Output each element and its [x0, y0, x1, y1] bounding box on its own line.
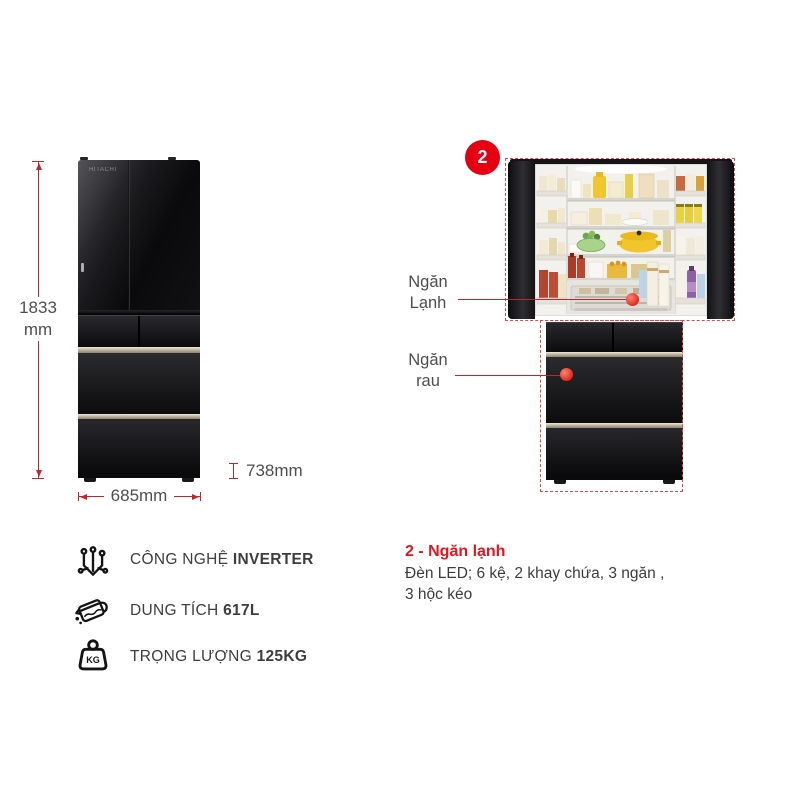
door-hinge [80, 157, 88, 160]
door-split-line [128, 160, 130, 310]
callout-line-ngan-rau [455, 375, 567, 376]
weight-icon-kg-text: KG [86, 655, 100, 665]
circuit-icon [70, 538, 116, 582]
callout-dot-ngan-lanh [626, 293, 639, 306]
feature-weight: KG TRỌNG LƯỢNG 125KG [70, 635, 307, 679]
large-drawer [78, 353, 200, 414]
feature-weight-text: TRỌNG LƯỢNG 125KG [130, 648, 307, 666]
fridge-doors: HITACHI [78, 160, 200, 310]
label-ngan-lanh: Ngăn Lạnh [398, 272, 458, 314]
callout-badge: 2 [465, 140, 500, 175]
height-value: 1833 [10, 297, 66, 319]
label-ngan-rau: Ngăn rau [398, 350, 458, 392]
feature-inverter: CÔNG NGHỆ INVERTER [70, 538, 314, 582]
description-line: Đèn LED; 6 kệ, 2 khay chứa, 3 ngăn , [405, 563, 725, 584]
brand-logo: HITACHI [89, 167, 117, 173]
door-hinge [168, 157, 176, 160]
door-gloss [78, 160, 200, 310]
small-drawers [78, 315, 200, 347]
depth-dimension-cap-top [229, 463, 238, 464]
width-arrow-right [192, 494, 199, 500]
feature-capacity: DUNG TÍCH 617L [70, 589, 260, 633]
door-handle [81, 263, 84, 272]
height-dimension-cap-top [32, 161, 44, 162]
height-arrow-down [36, 470, 42, 477]
drawer-split-line [138, 316, 140, 347]
product-infographic: HITACHI 1833 mm 685mm 738mm 2 [0, 0, 800, 800]
callout-dot-ngan-rau [560, 368, 573, 381]
fridge-base [78, 473, 200, 478]
height-arrow-up [36, 163, 42, 170]
fridge-foot [182, 478, 194, 482]
dashed-outline-fridge-compartment [505, 158, 735, 321]
capacity-jug-icon [70, 589, 116, 633]
large-drawer [78, 419, 200, 473]
height-unit: mm [10, 319, 66, 341]
height-dimension-label: 1833 mm [10, 297, 66, 341]
width-dimension-cap-right [200, 492, 201, 501]
height-dimension-cap-bottom [32, 478, 44, 479]
width-dimension-cap-left [78, 492, 79, 501]
width-dimension-label: 685mm [104, 485, 174, 507]
depth-dimension-line [233, 464, 234, 478]
depth-dimension-label: 738mm [246, 460, 322, 482]
description-title: 2 - Ngăn lạnh [405, 541, 725, 563]
compartment-description: 2 - Ngăn lạnh Đèn LED; 6 kệ, 2 khay chứa… [405, 541, 725, 605]
fridge-foot [84, 478, 96, 482]
closed-fridge: HITACHI [78, 160, 200, 478]
feature-inverter-text: CÔNG NGHỆ INVERTER [130, 551, 314, 569]
description-line: 3 hộc kéo [405, 584, 725, 605]
depth-dimension-cap-bottom [229, 478, 238, 479]
weight-icon: KG [70, 635, 116, 679]
dashed-outline-drawer-compartment [540, 320, 683, 492]
feature-capacity-text: DUNG TÍCH 617L [130, 602, 260, 620]
width-arrow-left [80, 494, 87, 500]
callout-line-ngan-lanh [458, 299, 633, 300]
